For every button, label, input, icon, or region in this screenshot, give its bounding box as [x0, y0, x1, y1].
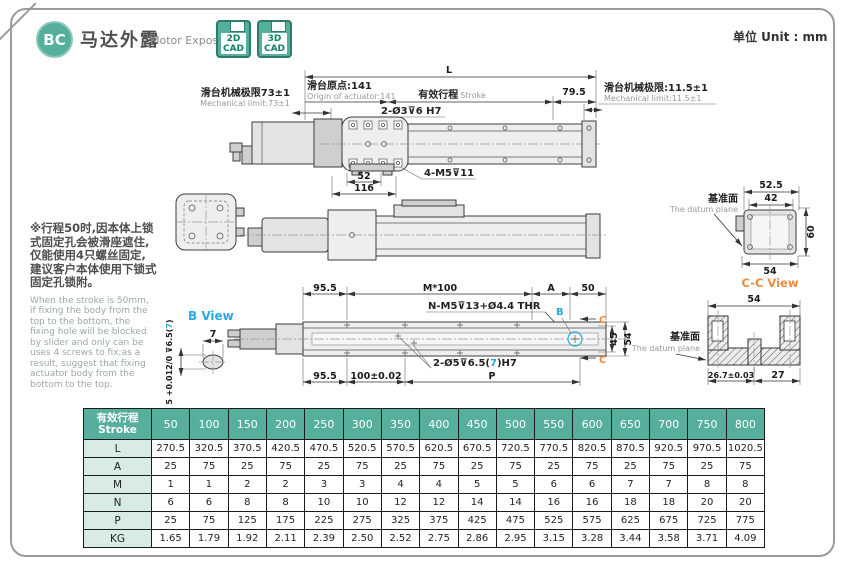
cad-3d-line2: CAD: [264, 44, 285, 54]
stroke-zh: 有效行程: [418, 88, 458, 101]
table-header-row: 有效行程Stroke 50 100 150 200 250 300 350 40…: [84, 409, 765, 440]
table-cell: 670.5: [458, 440, 496, 458]
table-cell: 770.5: [535, 440, 573, 458]
table-cell: 3.71: [688, 530, 726, 548]
top-view: L 滑台原点:141 Origin of actuator:141 有效行程St…: [200, 65, 716, 198]
stroke-spec-table: 有效行程Stroke 50 100 150 200 250 300 350 40…: [83, 408, 765, 548]
table-cell: 775: [726, 512, 764, 530]
table-header-en: Stroke: [84, 424, 151, 436]
pin-callout-post: )H7: [497, 358, 517, 369]
table-cell: 2.11: [266, 530, 304, 548]
dim-116: 116: [354, 183, 374, 194]
datum-tab: [736, 216, 744, 231]
table-cell: 4.09: [726, 530, 764, 548]
table-cell: 1020.5: [726, 440, 764, 458]
dim-79-5: 79.5: [562, 87, 585, 98]
cad-3d-label: 3DCAD: [262, 33, 287, 54]
table-cell: 720.5: [496, 440, 534, 458]
marker-C-bottom: C: [599, 355, 606, 366]
b-view: B View 7 5 +0.012/0 ⊽6.5(7): [165, 309, 234, 405]
section-center-stub: [748, 339, 761, 365]
table-cell: 75: [496, 458, 534, 476]
pin-tolerance-pre: 5 +0.012/0 ⊽6.5(: [165, 328, 174, 404]
dim-50: 50: [581, 283, 595, 294]
row-label: KG: [84, 530, 152, 548]
stroke-col-header: 100: [190, 409, 228, 440]
end-cap-side: [586, 214, 600, 258]
table-cell: 25: [458, 458, 496, 476]
table-cell: 2.95: [496, 530, 534, 548]
technical-drawing: L 滑台原点:141 Origin of actuator:141 有效行程St…: [0, 58, 845, 406]
end-cap: [582, 121, 596, 167]
stroke-col-header: 350: [381, 409, 419, 440]
table-cell: 3.28: [573, 530, 611, 548]
table-cell: 6: [573, 476, 611, 494]
table-cell: 225: [305, 512, 343, 530]
marker-B: B: [556, 307, 564, 318]
table-cell: 870.5: [611, 440, 649, 458]
stroke-en: Stroke: [460, 91, 486, 100]
table-header-zh: 有效行程: [84, 412, 151, 424]
table-cell: 275: [343, 512, 381, 530]
table-cell: 675: [650, 512, 688, 530]
stroke-col-header: 50: [152, 409, 190, 440]
table-cell: 620.5: [420, 440, 458, 458]
table-cell: 2.52: [381, 530, 419, 548]
table-cell: 7: [650, 476, 688, 494]
table-cell: 1: [190, 476, 228, 494]
table-cell: 1.79: [190, 530, 228, 548]
table-cell: 4: [381, 476, 419, 494]
mech-limit-right-zh: 滑台机械极限:11.5±1: [604, 81, 708, 94]
table-row: A 25 75 25 75 25 75 25 75 25 75 25 75 25…: [84, 458, 765, 476]
table-cell: 75: [343, 458, 381, 476]
dim-A: A: [547, 283, 555, 294]
datum-plane2-en: The datum plane: [631, 344, 700, 353]
origin-label-zh: 滑台原点:141: [307, 79, 372, 92]
table-cell: 18: [611, 494, 649, 512]
table-cell: 2: [266, 476, 304, 494]
table-cell: 25: [152, 458, 190, 476]
table-cell: 7: [611, 476, 649, 494]
stroke-col-header: 700: [650, 409, 688, 440]
dim-m100: M*100: [423, 283, 458, 294]
table-row: P 25 75 125 175 225 275 325 375 425 475 …: [84, 512, 765, 530]
table-cell: 12: [420, 494, 458, 512]
mech-limit-left-en: Mechanical limit:73±1: [200, 99, 290, 108]
dim-100: 100±0.02: [350, 371, 401, 382]
table-cell: 570.5: [381, 440, 419, 458]
cad-2d-button[interactable]: 2DCAD: [216, 20, 251, 58]
table-cell: 3.44: [611, 530, 649, 548]
table-cell: 25: [228, 458, 266, 476]
dim-L: L: [446, 65, 452, 76]
b-view-label: B View: [188, 309, 234, 323]
table-cell: 6: [190, 494, 228, 512]
datum-plane-en: The datum plane: [669, 205, 738, 214]
stroke-col-header: 800: [726, 409, 764, 440]
cad-2d-line1: 2D: [227, 34, 241, 44]
section-dim-54: 54: [747, 294, 761, 305]
pin-tolerance: 5 +0.012/0 ⊽6.5(7): [165, 319, 174, 404]
table-cell: 20: [688, 494, 726, 512]
table-cell: 2.50: [343, 530, 381, 548]
table-cell: 525: [535, 512, 573, 530]
rail-side: [376, 216, 586, 256]
motor-connector: [230, 143, 242, 152]
dim-52: 52: [357, 171, 370, 182]
dim-95-5-top: 95.5: [313, 283, 336, 294]
table-cell: 25: [535, 458, 573, 476]
series-badge: BC: [36, 21, 73, 58]
dim-45: 45: [609, 332, 620, 345]
table-cell: 75: [726, 458, 764, 476]
table-cell: 25: [688, 458, 726, 476]
table-cell: 1.92: [228, 530, 266, 548]
table-cell: 75: [420, 458, 458, 476]
table-cell: 8: [266, 494, 304, 512]
pin-callout-blue: 7: [490, 358, 497, 369]
datum-plane2-zh: 基准面: [669, 330, 700, 343]
floppy-disk-icon: [271, 22, 286, 32]
table-cell: 6: [535, 476, 573, 494]
table-row: N 6 6 8 8 10 10 12 12 14 14 16 16 18 18 …: [84, 494, 765, 512]
table-cell: 25: [305, 458, 343, 476]
row-label: P: [84, 512, 152, 530]
hole-callout: 2-Ø3⊽6 H7: [381, 105, 441, 117]
table-cell: 2.86: [458, 530, 496, 548]
table-cell: 16: [573, 494, 611, 512]
table-cell: 175: [266, 512, 304, 530]
datum-plane-zh: 基准面: [707, 192, 738, 205]
origin-label-en: Origin of actuator:141: [307, 92, 396, 101]
table-cell: 625: [611, 512, 649, 530]
table-cell: 5: [496, 476, 534, 494]
table-cell: 125: [228, 512, 266, 530]
table-cell: 2.39: [305, 530, 343, 548]
table-cell: 25: [152, 512, 190, 530]
pin-callout-pre: 2-Ø5⊽6.5(: [433, 357, 490, 369]
table-cell: 475: [496, 512, 534, 530]
stroke-col-header: 600: [573, 409, 611, 440]
cad-2d-label: 2DCAD: [221, 33, 246, 54]
carriage-plate: [350, 164, 394, 171]
stroke-col-header: 250: [305, 409, 343, 440]
table-row: KG 1.65 1.79 1.92 2.11 2.39 2.50 2.52 2.…: [84, 530, 765, 548]
table-cell: 3: [343, 476, 381, 494]
table-cell: 5: [458, 476, 496, 494]
pin-callout: 2-Ø5⊽6.5(7)H7: [433, 357, 517, 369]
slider-side: [394, 205, 464, 217]
stroke-col-header: 400: [420, 409, 458, 440]
table-cell: 8: [726, 476, 764, 494]
cc-view-label: C-C View: [742, 276, 799, 290]
table-cell: 970.5: [688, 440, 726, 458]
table-cell: 25: [381, 458, 419, 476]
coupling-housing: [314, 119, 342, 167]
table-cell: 25: [611, 458, 649, 476]
stroke-col-header: 500: [496, 409, 534, 440]
table-cell: 14: [458, 494, 496, 512]
table-cell: 725: [688, 512, 726, 530]
table-cell: 14: [496, 494, 534, 512]
dim-60: 60: [806, 225, 817, 239]
table-cell: 75: [266, 458, 304, 476]
cad-3d-button[interactable]: 3DCAD: [257, 20, 292, 58]
row-label: M: [84, 476, 152, 494]
dim-7: 7: [210, 329, 217, 340]
unit-label: 单位 Unit : mm: [733, 28, 827, 45]
stroke-col-header: 550: [535, 409, 573, 440]
dim-54-bottom: 54: [623, 332, 634, 346]
screw-callout: 4-M5⊽11: [424, 168, 474, 179]
table-cell: 370.5: [228, 440, 266, 458]
table-cell: 4: [420, 476, 458, 494]
bottom-view: 95.5 M*100 A 50 N-M5⊽13+Ø4.4 THR B: [228, 283, 634, 386]
table-cell: 375: [420, 512, 458, 530]
side-view: [176, 194, 606, 260]
table-cell: 2.75: [420, 530, 458, 548]
catalog-page: BC 马达外露 Motor Exposed 2DCAD 3DCAD 单位 Uni…: [0, 0, 845, 567]
row-label: A: [84, 458, 152, 476]
mech-limit-left-zh: 滑台机械极限73±1: [201, 86, 290, 99]
row-label: N: [84, 494, 152, 512]
table-cell: 920.5: [650, 440, 688, 458]
motor-body: [252, 122, 314, 164]
pin-tolerance-post: ): [165, 319, 174, 323]
row-label: L: [84, 440, 152, 458]
table-cell: 20: [726, 494, 764, 512]
table-cell: 75: [650, 458, 688, 476]
dim-95-5-bottom: 95.5: [313, 371, 336, 382]
dim-P: P: [489, 371, 496, 382]
table-cell: 520.5: [343, 440, 381, 458]
table-cell: 1.65: [152, 530, 190, 548]
table-cell: 575: [573, 512, 611, 530]
dim-42: 42: [764, 193, 777, 204]
table-cell: 425: [458, 512, 496, 530]
cad-2d-line2: CAD: [223, 44, 244, 54]
table-cell: 420.5: [266, 440, 304, 458]
table-cell: 3.15: [535, 530, 573, 548]
table-cell: 10: [305, 494, 343, 512]
table-cell: 8: [688, 476, 726, 494]
stroke-col-header: 450: [458, 409, 496, 440]
table-row: M 1 1 2 2 3 3 4 4 5 5 6 6 7 7 8 8: [84, 476, 765, 494]
mech-limit-right-en: Mechanical limit:11.5±1: [604, 94, 701, 103]
table-cell: 470.5: [305, 440, 343, 458]
table-cell: 10: [343, 494, 381, 512]
thread-callout: N-M5⊽13+Ø4.4 THR: [428, 300, 541, 312]
floppy-disk-icon: [230, 22, 245, 32]
cc-section: 54 26.7±0.03 27 基准面 The datum plane: [631, 294, 800, 385]
table-cell: 12: [381, 494, 419, 512]
end-view-right: 52.5 42 60 54 基准面 The datum plane C-C Vi…: [669, 180, 817, 290]
table-cell: 325: [381, 512, 419, 530]
dim-52-5: 52.5: [759, 180, 782, 191]
table-cell: 820.5: [573, 440, 611, 458]
table-row: L 270.5 320.5 370.5 420.5 470.5 520.5 57…: [84, 440, 765, 458]
table-cell: 75: [190, 512, 228, 530]
stroke-col-header: 150: [228, 409, 266, 440]
stroke-col-header: 300: [343, 409, 381, 440]
table-header-label: 有效行程Stroke: [84, 409, 152, 440]
table-cell: 3.58: [650, 530, 688, 548]
table-cell: 3: [305, 476, 343, 494]
table-cell: 6: [152, 494, 190, 512]
stroke-dim-label: 有效行程Stroke: [418, 88, 486, 101]
page-title-zh: 马达外露: [80, 26, 160, 52]
stroke-col-header: 650: [611, 409, 649, 440]
stroke-col-header: 200: [266, 409, 304, 440]
table-cell: 75: [190, 458, 228, 476]
cad-3d-line1: 3D: [268, 34, 282, 44]
table-cell: 2: [228, 476, 266, 494]
marker-C-top: C: [599, 315, 606, 326]
table-cell: 18: [650, 494, 688, 512]
stroke-col-header: 750: [688, 409, 726, 440]
table-cell: 16: [535, 494, 573, 512]
dim-26-7: 26.7±0.03: [708, 371, 754, 380]
table-cell: 75: [573, 458, 611, 476]
dim-27: 27: [771, 370, 784, 381]
connector-side: [248, 228, 262, 246]
table-cell: 1: [152, 476, 190, 494]
table-cell: 8: [228, 494, 266, 512]
table-cell: 320.5: [190, 440, 228, 458]
table-cell: 270.5: [152, 440, 190, 458]
